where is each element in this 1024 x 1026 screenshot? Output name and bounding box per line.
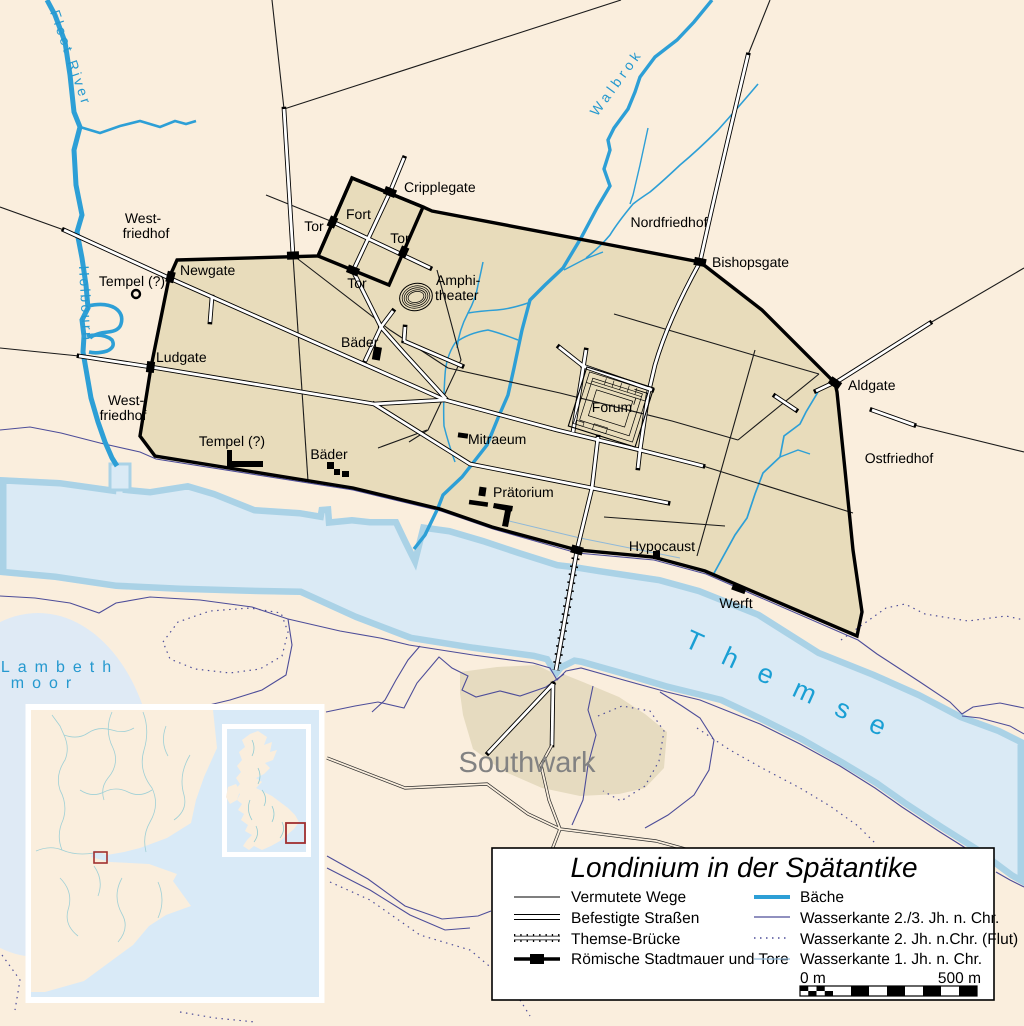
svg-text:Werft: Werft — [719, 595, 752, 611]
svg-text:Mitraeum: Mitraeum — [468, 431, 526, 447]
svg-text:0 m: 0 m — [800, 970, 826, 987]
svg-text:Prätorium: Prätorium — [493, 484, 554, 500]
svg-text:Ostfriedhof: Ostfriedhof — [865, 450, 934, 466]
svg-text:Tor: Tor — [390, 230, 410, 246]
svg-text:Vermutete Wege: Vermutete Wege — [571, 889, 686, 906]
svg-text:Southwark: Southwark — [458, 747, 596, 779]
svg-text:Tempel (?): Tempel (?) — [199, 433, 265, 449]
svg-text:theater: theater — [435, 287, 479, 303]
svg-text:Bäder: Bäder — [310, 446, 348, 462]
svg-text:friedhof: friedhof — [100, 407, 147, 423]
svg-text:Fort: Fort — [346, 206, 371, 222]
svg-text:West-: West- — [125, 210, 162, 226]
svg-text:500 m: 500 m — [938, 970, 981, 987]
svg-text:Nordfriedhof: Nordfriedhof — [630, 214, 707, 230]
svg-text:Ludgate: Ludgate — [156, 349, 207, 365]
svg-text:friedhof: friedhof — [123, 225, 170, 241]
svg-text:West-: West- — [108, 392, 145, 408]
svg-text:Hypocaust: Hypocaust — [629, 538, 695, 554]
svg-text:Wasserkante 2. Jh. n.Chr. (Flu: Wasserkante 2. Jh. n.Chr. (Flut) — [800, 931, 1018, 948]
svg-text:Tor: Tor — [347, 275, 367, 291]
svg-text:Londinium in der Spätantike: Londinium in der Spätantike — [570, 852, 917, 883]
svg-text:Tempel (?): Tempel (?) — [99, 273, 165, 289]
svg-text:Tor: Tor — [304, 218, 324, 234]
svg-text:Befestigte Straßen: Befestigte Straßen — [571, 910, 699, 927]
svg-text:moor: moor — [11, 675, 79, 692]
svg-text:Aldgate: Aldgate — [848, 377, 896, 393]
svg-text:Amphi-: Amphi- — [436, 272, 481, 288]
svg-text:Bäche: Bäche — [800, 889, 844, 906]
svg-text:Themse-Brücke: Themse-Brücke — [571, 931, 680, 948]
svg-text:Newgate: Newgate — [180, 262, 235, 278]
svg-text:Cripplegate: Cripplegate — [404, 179, 476, 195]
svg-text:Bishopsgate: Bishopsgate — [712, 254, 789, 270]
svg-text:Wasserkante 1. Jh. n. Chr.: Wasserkante 1. Jh. n. Chr. — [800, 951, 982, 968]
svg-text:Wasserkante 2./3. Jh. n. Chr.: Wasserkante 2./3. Jh. n. Chr. — [800, 910, 999, 927]
svg-text:Forum: Forum — [592, 399, 632, 415]
svg-text:Bäder: Bäder — [341, 334, 379, 350]
svg-text:Lambeth: Lambeth — [1, 659, 119, 676]
